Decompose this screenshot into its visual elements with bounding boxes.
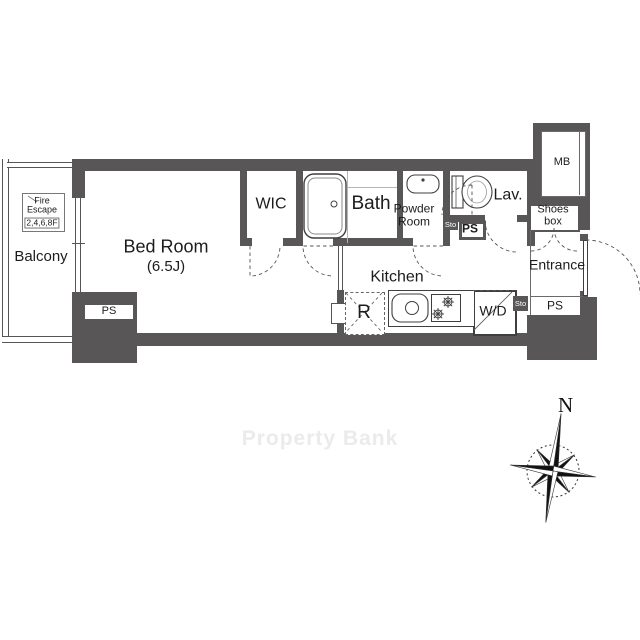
label-fire-escape: Fire Escape xyxy=(27,197,57,216)
label-shoes-line2: box xyxy=(537,216,568,228)
bathtub-icon xyxy=(304,174,346,238)
label-washer-dryer: W/D xyxy=(479,304,506,319)
stove-burners-icon xyxy=(432,296,454,320)
label-powder-room: Powder Room xyxy=(394,202,435,227)
compass-north-label: N xyxy=(558,393,573,417)
label-shoes-box: Shoes box xyxy=(537,204,568,227)
label-ps-left: PS xyxy=(102,306,117,318)
label-balcony: Balcony xyxy=(14,249,67,265)
label-wic: WIC xyxy=(255,197,286,214)
label-shoes-line1: Shoes xyxy=(537,204,568,216)
label-fire-escape-floors: 2,4,6,8F xyxy=(24,218,59,229)
label-ps-lav: PS xyxy=(462,223,478,236)
fire-escape-line2: Escape xyxy=(27,206,57,215)
label-bath: Bath xyxy=(351,194,390,214)
kitchen-sink-icon xyxy=(392,294,428,322)
label-meter-box: MB xyxy=(554,157,571,169)
badge-sto-entrance: Sto xyxy=(513,296,528,311)
label-powder-line1: Powder xyxy=(394,202,435,215)
label-ps-entrance: PS xyxy=(547,300,563,313)
label-lavatory: Lav. xyxy=(493,188,522,205)
label-kitchen: Kitchen xyxy=(370,270,423,287)
watermark: Property Bank xyxy=(170,427,470,451)
label-entrance: Entrance xyxy=(529,258,585,273)
label-bed-room: Bed Room xyxy=(123,238,208,257)
floor-plan: N Balcony Bed Room xyxy=(0,0,640,640)
fixtures-layer: N xyxy=(0,0,640,640)
hall-partition-lines xyxy=(339,246,343,290)
label-refrigerator: R xyxy=(357,303,371,323)
label-powder-line2: Room xyxy=(394,215,435,228)
compass-rose: N xyxy=(503,393,603,528)
label-bed-room-size: (6.5J) xyxy=(147,259,185,275)
sink-icon xyxy=(407,175,439,193)
badge-sto-powder: Sto xyxy=(443,218,458,230)
window-panes xyxy=(72,198,85,292)
